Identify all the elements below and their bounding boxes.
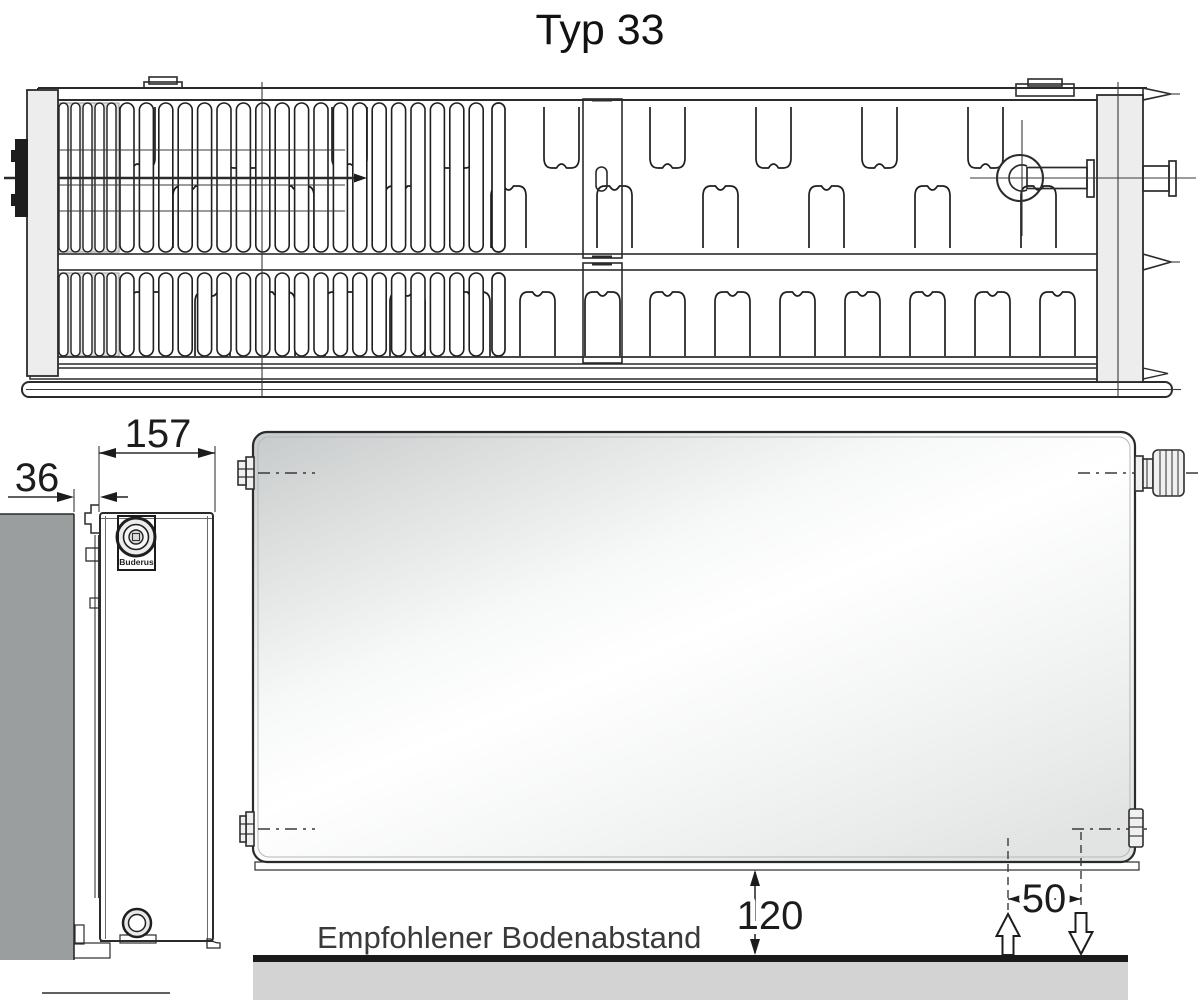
transition-slat — [492, 273, 505, 356]
omega-fin-upper — [862, 107, 897, 168]
omega-fin-lower — [715, 292, 750, 356]
grille-slat — [71, 273, 80, 356]
omega-fin-upper — [756, 107, 791, 168]
omega-fin-upper — [915, 186, 950, 248]
grille-slat — [178, 273, 192, 356]
grille-slat — [120, 273, 134, 356]
omega-fin-upper — [1021, 186, 1056, 248]
omega-fin-lower — [780, 292, 815, 356]
grille-slat — [95, 273, 104, 356]
grille-slat — [411, 273, 425, 356]
radiator-spec-sheet: Typ 33 — [0, 0, 1200, 1000]
omega-fin-upper — [597, 186, 632, 248]
top-view-drawing — [4, 77, 1196, 397]
flow-arrow-up — [997, 914, 1020, 955]
front-panel — [253, 432, 1135, 862]
grille-slat — [469, 103, 483, 252]
omega-fin-lower — [845, 292, 880, 356]
omega-fin-lower — [1040, 292, 1075, 356]
grille-slat — [430, 273, 444, 356]
floor-line — [253, 955, 1128, 962]
depth-dim-label: 157 — [125, 412, 192, 456]
vent-valve-knob — [117, 518, 155, 556]
omega-fin-upper — [809, 186, 844, 248]
grille-slat — [392, 273, 406, 356]
wall — [0, 514, 74, 960]
grille-slat — [372, 103, 386, 252]
grille-slat — [450, 273, 464, 356]
radiator-side-body — [100, 513, 213, 941]
omega-fin-upper — [650, 107, 685, 168]
omega-fin-lower — [910, 292, 945, 356]
wall-gap-dim-label: 36 — [15, 456, 60, 500]
transition-slat — [492, 103, 505, 252]
grille-slat — [139, 273, 153, 356]
convector-fin-pattern — [58, 103, 1075, 356]
grille-slat — [275, 273, 289, 356]
pipe-spacing-dim-label: 50 — [1022, 877, 1067, 921]
wall-bracket-clip — [85, 505, 99, 533]
front-view-drawing: Empfohlener Bodenabstand 120 50 — [238, 432, 1199, 1000]
dimension-36: 36 — [8, 456, 128, 512]
grille-slat — [159, 273, 173, 356]
dimension-120: 120 — [737, 870, 804, 955]
omega-fin-lower — [520, 292, 555, 356]
grille-slat — [333, 273, 347, 356]
page-title: Typ 33 — [535, 6, 664, 54]
omega-fin-upper — [703, 186, 738, 248]
valve-assembly-plan — [970, 120, 1196, 236]
grille-slat — [450, 103, 464, 252]
grille-slat — [217, 273, 231, 356]
grille-slat — [256, 273, 270, 356]
omega-fin-lower — [650, 292, 685, 356]
right-end-cap — [1097, 95, 1143, 382]
panel-bottom-edge — [255, 862, 1139, 870]
grille-slat — [295, 273, 309, 356]
grille-slat — [198, 273, 212, 356]
side-view-drawing: Buderus 157 36 — [0, 412, 220, 993]
grille-slat — [83, 273, 92, 356]
omega-fin-upper — [544, 107, 579, 168]
omega-fin-lower — [585, 292, 620, 356]
grille-slat — [411, 103, 425, 252]
return-arrow-down — [1070, 913, 1093, 954]
grille-slat — [372, 273, 386, 356]
floor-ground — [253, 962, 1128, 1000]
floor-bracket-foot — [74, 943, 110, 958]
omega-fin-upper — [968, 107, 1003, 168]
grille-slat — [430, 103, 444, 252]
grille-slat — [469, 273, 483, 356]
omega-fin-lower — [975, 292, 1010, 356]
brand-label: Buderus — [119, 557, 154, 567]
mounting-tab-left — [144, 77, 182, 88]
left-end-cap — [11, 90, 58, 376]
floor-note-label: Empfohlener Bodenabstand — [317, 920, 701, 955]
floor-clearance-dim-label: 120 — [737, 894, 804, 938]
grille-slat — [353, 273, 367, 356]
grille-slat — [392, 103, 406, 252]
grille-slat — [314, 273, 328, 356]
grille-slat — [59, 273, 68, 356]
radiator-technical-drawing: Typ 33 — [0, 0, 1200, 1000]
grille-slat — [107, 273, 116, 356]
grille-slat — [236, 273, 250, 356]
